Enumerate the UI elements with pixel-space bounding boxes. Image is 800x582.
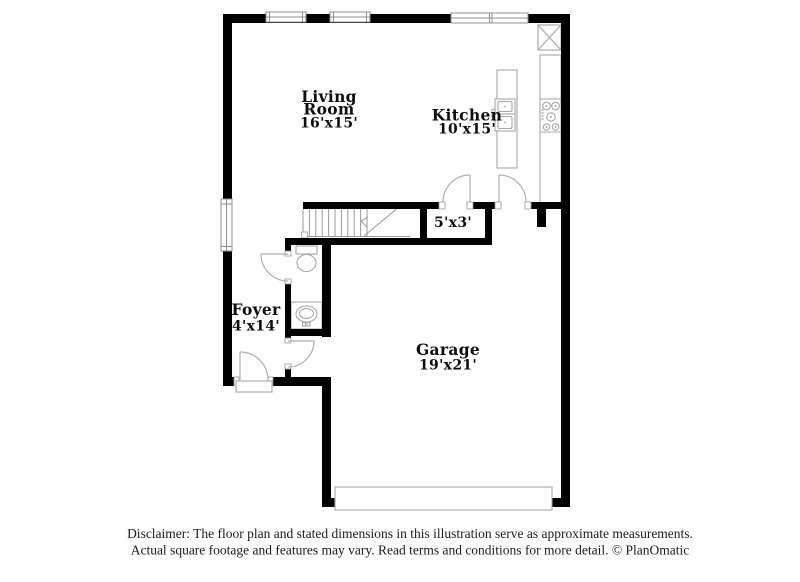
pantry-door-swing-icon: [443, 175, 470, 202]
disclaimer-line-1: Disclaimer: The floor plan and stated di…: [127, 526, 693, 541]
foyer-dimensions: 4'x14': [232, 319, 280, 335]
vestibule-door-swing-icon: [288, 341, 314, 367]
appliance-box-icon: [538, 25, 561, 50]
wall-pantry-right: [485, 209, 492, 238]
powder-room-door-swing-icon: [261, 254, 288, 281]
floor-plan: Living Room 16'x15' Kitchen 10'x15' 5'x3…: [0, 0, 800, 582]
stairs-run-line: [364, 207, 399, 236]
sink-vanity-icon: [291, 302, 322, 329]
garage-dimensions: 19'x21': [419, 358, 477, 374]
wall-pantry-left: [420, 209, 427, 238]
wall-kitchen-garage-b: [470, 202, 498, 209]
walls: [223, 14, 570, 507]
wall-understairs: [285, 238, 492, 245]
window-left-wall-icon: [221, 199, 232, 251]
wall-powder-right: [322, 238, 331, 337]
garage-label: Garage: [416, 340, 480, 359]
wall-kitchen-garage-c: [528, 202, 561, 209]
disclaimer: Disclaimer: The floor plan and stated di…: [127, 526, 693, 558]
stairs-newel: [302, 232, 308, 238]
window-top-mid-icon: [330, 12, 370, 22]
disclaimer-line-2: Actual square footage and features may v…: [131, 543, 690, 558]
wall-stub: [537, 209, 546, 227]
wall-kitchen-garage-a: [303, 202, 442, 209]
wall-right-exterior: [561, 14, 570, 507]
garage-entry-door-swing-icon: [499, 175, 526, 202]
kitchen-dimensions: 10'x15': [438, 122, 496, 138]
living-room-dimensions: 16'x15': [300, 116, 358, 132]
foyer-label: Foyer: [231, 300, 281, 319]
window-top-left-icon: [266, 12, 306, 22]
window-kitchen-icon: [451, 13, 528, 23]
pantry-dimensions: 5'x3': [434, 215, 472, 231]
garage-door-icon: [335, 487, 552, 510]
stairs-icon: [302, 207, 411, 238]
front-door-threshold: [236, 381, 272, 392]
wall-powder-left-c: [285, 367, 291, 386]
toilet-icon: [296, 246, 317, 272]
wall-garage-left: [322, 377, 331, 507]
front-door-swing-icon: [240, 352, 268, 380]
